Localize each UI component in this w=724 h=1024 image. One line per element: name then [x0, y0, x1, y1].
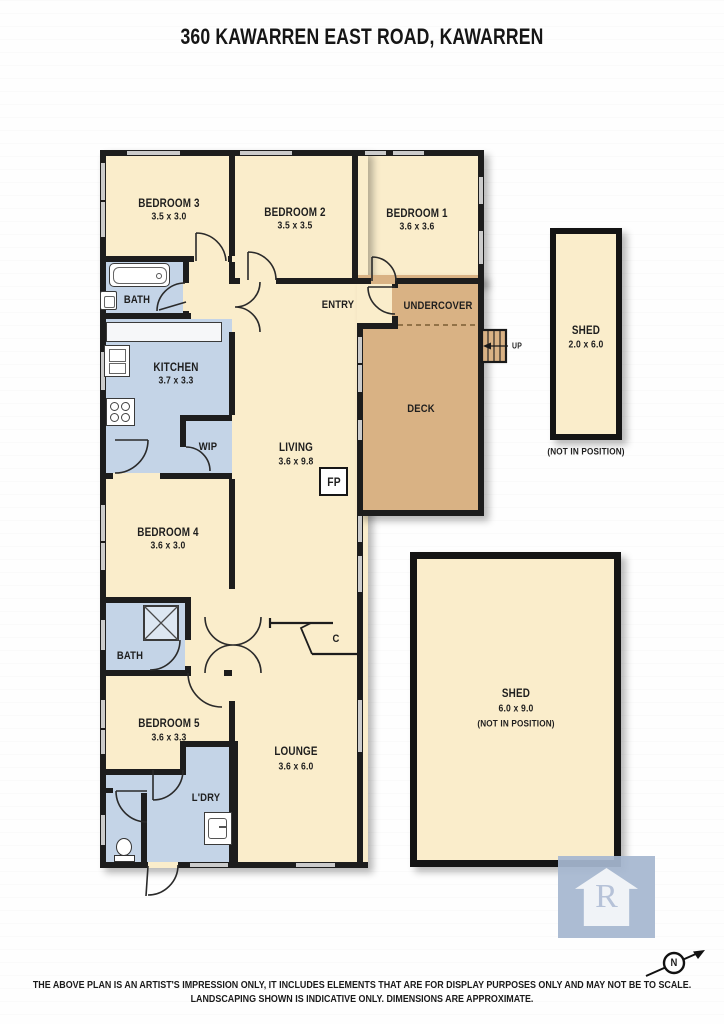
room-dims-bedroom4: 3.6 x 3.0 — [150, 541, 185, 552]
room-label-wip: WIP — [199, 441, 217, 453]
room-label-entry: ENTRY — [322, 299, 355, 311]
door-arc-hall-top — [235, 282, 260, 332]
agency-logo: R — [558, 856, 655, 938]
door-arc-bath-top — [157, 283, 186, 311]
room-dims-bedroom1: 3.6 x 3.6 — [399, 222, 434, 233]
room-label-closet: C — [332, 633, 339, 645]
room-label-bedroom1: BEDROOM 1 — [386, 208, 447, 220]
shed-large-note: (NOT IN POSITION) — [477, 719, 554, 730]
shed-small-note: (NOT IN POSITION) — [547, 447, 624, 458]
room-label-bedroom5: BEDROOM 5 — [138, 718, 199, 730]
door-arc-exterior — [146, 865, 178, 896]
door-arc-bedroom3 — [196, 233, 226, 261]
door-arc-laundry — [153, 770, 183, 800]
disclaimer-line-1: THE ABOVE PLAN IS AN ARTIST'S IMPRESSION… — [33, 979, 691, 991]
door-arc-entry — [368, 287, 395, 314]
room-label-undercover: UNDERCOVER — [403, 300, 472, 312]
door-swing-arcs — [115, 233, 396, 896]
closet-walls — [270, 618, 360, 654]
closet-door-leaf — [301, 623, 312, 654]
stairs-up-label: UP — [512, 342, 522, 351]
door-arc-wc — [116, 791, 147, 822]
room-label-bath-top: BATH — [124, 294, 150, 306]
room-label-bedroom4: BEDROOM 4 — [137, 527, 198, 539]
shed-small-dims: 2.0 x 6.0 — [568, 340, 603, 351]
door-arc-bath-mid — [150, 640, 180, 670]
closet-linework — [270, 618, 360, 654]
shower-cross-icon — [144, 606, 178, 640]
room-dims-kitchen: 3.7 x 3.3 — [158, 376, 193, 387]
door-arc-bedroom2 — [248, 252, 276, 280]
room-label-bath-mid: BATH — [117, 650, 143, 662]
room-label-kitchen: KITCHEN — [153, 362, 198, 374]
room-dims-living: 3.6 x 9.8 — [278, 457, 313, 468]
room-label-laundry: L'DRY — [192, 792, 221, 804]
room-label-bedroom2: BEDROOM 2 — [264, 207, 325, 219]
door-arc-bedroom1 — [372, 257, 396, 281]
logo-letter: R — [558, 878, 655, 916]
room-label-bedroom3: BEDROOM 3 — [138, 198, 199, 210]
room-label-deck: DECK — [407, 403, 434, 415]
stairs-icon — [482, 330, 508, 362]
room-dims-bedroom2: 3.5 x 3.5 — [277, 221, 312, 232]
door-arc-kitchen — [115, 440, 148, 473]
room-dims-bedroom3: 3.5 x 3.0 — [151, 212, 186, 223]
shed-small-label: SHED — [572, 325, 600, 337]
disclaimer-line-2: LANDSCAPING SHOWN IS INDICATIVE ONLY. DI… — [191, 993, 534, 1005]
room-label-living: LIVING — [279, 442, 313, 454]
compass-north-label: N — [670, 957, 677, 969]
door-arc-bedroom5 — [188, 673, 222, 707]
shed-large-label: SHED — [502, 688, 530, 700]
room-dims-bedroom5: 3.6 x 3.3 — [151, 733, 186, 744]
floor-plan-page: 360 KAWARREN EAST ROAD, KAWARREN FP — [0, 0, 724, 1024]
shed-large-dims: 6.0 x 9.0 — [498, 704, 533, 715]
door-arc-hall-mid — [205, 617, 261, 673]
room-label-lounge: LOUNGE — [274, 746, 317, 758]
room-dims-lounge: 3.6 x 6.0 — [278, 762, 313, 773]
